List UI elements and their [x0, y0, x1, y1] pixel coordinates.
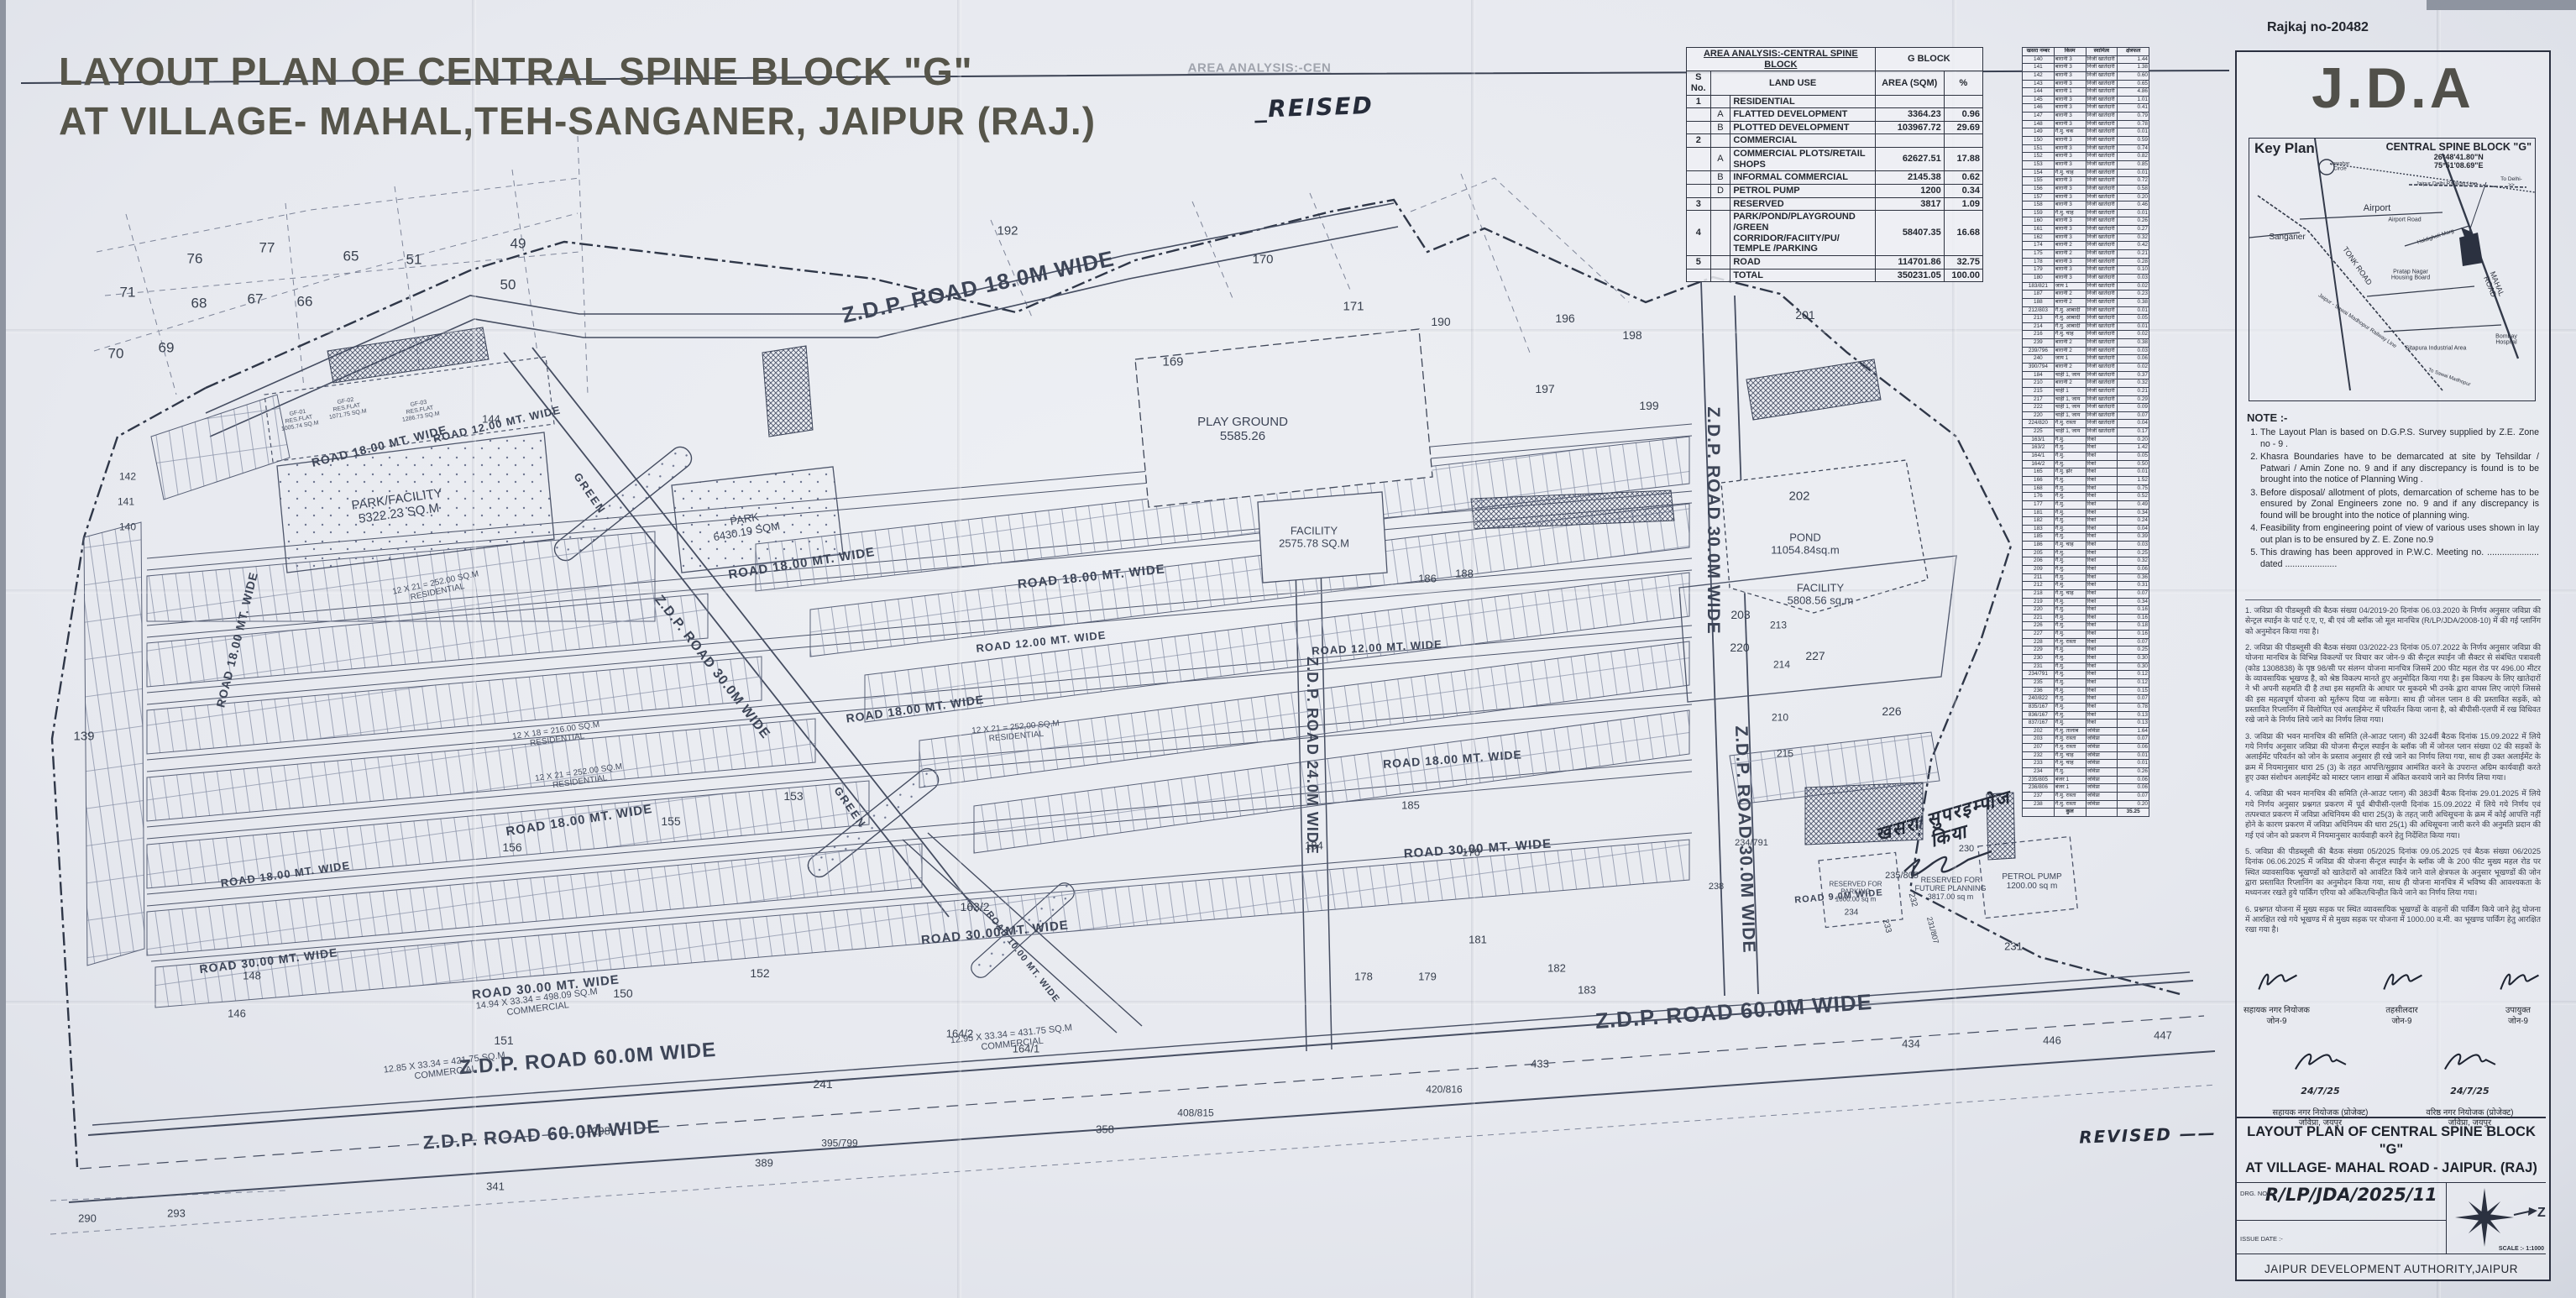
khasra-row: 145 बारानी 3 निजी खातेदारी 1.01: [2023, 96, 2149, 104]
kh-ownership: रिको: [2086, 638, 2118, 646]
khasra-number: 185: [1401, 800, 1420, 813]
kh-number: 228: [2023, 638, 2055, 646]
kh-area: 0.10: [2118, 266, 2149, 275]
kh-number: 225: [2023, 428, 2055, 437]
kh-type: बारानी 3: [2054, 55, 2086, 64]
kh-area: 0.06: [2118, 355, 2149, 364]
kh-type: बारानी 3: [2054, 144, 2086, 153]
cell-use: RESERVED: [1730, 197, 1875, 211]
kh-type: गै.मु. रास्ता: [2054, 792, 2086, 800]
khasra-number: 341: [486, 1181, 505, 1194]
kh-type: बारानी 3: [2054, 258, 2086, 266]
cell-pct: 32.75: [1944, 255, 1982, 269]
khasra-row: 228 गै.मु. रास्ता रिको 0.07: [2023, 638, 2149, 646]
kh-type: गै.मु.: [2054, 678, 2086, 687]
landuse-label: FACILITY 2575.78 SQ.M: [1279, 525, 1349, 549]
kh-area: 4.86: [2118, 88, 2149, 97]
kh-type: गै.मु.: [2054, 711, 2086, 720]
khasra-row: 175 बारानी 2 निजी खातेदारी 0.21: [2023, 250, 2149, 259]
khasra-row: 236/806 बंजर 1 जविप्रा 0.06: [2023, 784, 2149, 793]
kh-col-area: क्षेत्रफल: [2118, 48, 2149, 56]
signature-date: 24/7/25: [2450, 1086, 2489, 1096]
kh-type: गै.मु.: [2054, 493, 2086, 501]
kh-ownership: निजी खातेदारी: [2086, 258, 2118, 266]
signatory-title: सहायक नगर नियोजक जोन-9: [2244, 1006, 2310, 1025]
khasra-number: 153: [783, 790, 803, 803]
kh-area: 1.42: [2118, 444, 2149, 453]
kh-type: चाही 1: [2054, 387, 2086, 395]
kh-number: 166: [2023, 476, 2055, 484]
kh-type: बारानी 3: [2054, 80, 2086, 88]
khasra-number: 76: [187, 250, 203, 266]
khasra-row: 231 गै.मु. रिको 0.30: [2023, 662, 2149, 671]
kh-area: 1.44: [2118, 55, 2149, 64]
khasra-row: 164/1 गै.मु. रिको 0.05: [2023, 453, 2149, 461]
kh-number: 151: [2023, 144, 2055, 153]
khasra-number: 69: [159, 339, 175, 355]
kh-type: चाही 1, जाय: [2054, 428, 2086, 437]
khasra-number: 51: [406, 251, 422, 267]
kh-number: 239: [2023, 339, 2055, 348]
kh-ownership: रिको: [2086, 460, 2118, 468]
kh-ownership: रिको: [2086, 671, 2118, 679]
khasra-row: 227 गै.मु. रिको 0.16: [2023, 631, 2149, 639]
landuse-label: RESERVED FOR PARKING 1000.00 sq m: [1830, 882, 1882, 904]
note-section: NOTE :- The Layout Plan is based on D.G.…: [2247, 411, 2539, 573]
kh-type: बारानी 3: [2054, 104, 2086, 113]
kh-type: गै.मु. आबादी: [2054, 306, 2086, 315]
kh-number: 835/167: [2023, 703, 2055, 711]
kh-number: 188: [2023, 298, 2055, 306]
kh-ownership: जविप्रा: [2086, 751, 2118, 760]
kh-area: 0.12: [2118, 671, 2149, 679]
cell-area: 3364.23: [1875, 108, 1944, 122]
kh-area: 0.01: [2118, 128, 2149, 137]
kh-area: 1.01: [2118, 96, 2149, 104]
cell-sno: 5: [1687, 255, 1711, 269]
scanned-sheet: LAYOUT PLAN OF CENTRAL SPINE BLOCK "G" A…: [0, 0, 2576, 1298]
kh-number: 205: [2023, 549, 2055, 557]
khasra-row: 234/791 गै.मु. रिको 0.12: [2023, 671, 2149, 679]
kh-area: 0.06: [2118, 776, 2149, 784]
kh-type: बारानी 3: [2054, 160, 2086, 169]
signatory-title: तहसीलदार जोन-9: [2385, 1006, 2417, 1025]
kh-number: 176: [2023, 493, 2055, 501]
key-plan-place-label: Pratap Nagar Housing Board: [2391, 270, 2430, 282]
cell-sub: [1710, 211, 1730, 256]
khasra-number: 358: [1096, 1124, 1114, 1137]
khasra-row: 151 बारानी 3 निजी खातेदारी 0.74: [2023, 144, 2149, 153]
kh-number: 220: [2023, 411, 2055, 420]
kh-type: गै.मु.: [2054, 444, 2086, 453]
cell-sub: D: [1710, 185, 1730, 198]
khasra-row: 178 बारानी 3 निजी खातेदारी 0.28: [2023, 258, 2149, 266]
kh-number: 157: [2023, 193, 2055, 202]
kh-area: 0.30: [2118, 655, 2149, 663]
cell-pct: 0.62: [1944, 171, 1982, 185]
kh-area: 0.23: [2118, 290, 2149, 299]
kh-ownership: निजी खातेदारी: [2086, 347, 2118, 355]
kh-ownership: निजी खातेदारी: [2086, 242, 2118, 250]
kh-area: 0.20: [2118, 436, 2149, 444]
khasra-row: 836/167 गै.मु. रिको 0.13: [2023, 711, 2149, 720]
kh-type: बारानी 1: [2054, 88, 2086, 97]
kh-ownership: रिको: [2086, 589, 2118, 598]
col-area: AREA (SQM): [1875, 71, 1944, 95]
khasra-number: 163/2: [960, 901, 989, 914]
khasra-row: 209 गै.मु. रिको 0.06: [2023, 566, 2149, 574]
kh-type: गै.मु. चाह: [2054, 331, 2086, 339]
khasra-row: 217 चाही 1, जाय निजी खातेदारी 0.29: [2023, 395, 2149, 404]
kh-area: 0.07: [2118, 735, 2149, 744]
khasra-row: 143 बारानी 3 निजी खातेदारी 0.65: [2023, 80, 2149, 88]
kh-number: 222: [2023, 404, 2055, 412]
kh-ownership: निजी खातेदारी: [2086, 153, 2118, 161]
kh-type: बारानी 3: [2054, 185, 2086, 193]
kh-area: 0.02: [2118, 331, 2149, 339]
khasra-number: 290: [78, 1213, 97, 1226]
kh-total-label: कुल: [2054, 809, 2086, 817]
kh-area: 0.37: [2118, 371, 2149, 379]
khasra-number: 155: [661, 815, 680, 829]
rajkaj-number: Rajkaj no-20482: [2267, 20, 2369, 35]
khasra-number: 238: [1709, 882, 1724, 892]
kh-type: बारानी 3: [2054, 137, 2086, 145]
area-table-row: 1 RESIDENTIAL: [1687, 95, 1983, 108]
khasra-number: 298: [592, 1126, 610, 1138]
khasra-row: 239/796 बारानी 2 निजी खातेदारी 0.03: [2023, 347, 2149, 355]
kh-area: 0.28: [2118, 258, 2149, 266]
scan-edge-left: [0, 0, 6, 1298]
kh-area: 0.15: [2118, 687, 2149, 695]
kh-number: 226: [2023, 622, 2055, 631]
kh-area: 0.06: [2118, 744, 2149, 752]
kh-type: गै.मु. रास्ता: [2054, 638, 2086, 646]
kh-ownership: निजी खातेदारी: [2086, 96, 2118, 104]
kh-number: 390/794: [2023, 363, 2055, 371]
kh-number: 161: [2023, 226, 2055, 234]
kh-number: 211: [2023, 573, 2055, 582]
kh-area: 0.21: [2118, 250, 2149, 259]
khasra-number: 144: [482, 414, 500, 427]
khasra-row: 141 बारानी 3 निजी खातेदारी 1.38: [2023, 64, 2149, 72]
kh-ownership: निजी खातेदारी: [2086, 282, 2118, 290]
kh-number: 186: [2023, 542, 2055, 550]
khasra-row: 162 बारानी 3 निजी खातेदारी 0.32: [2023, 233, 2149, 242]
khasra-row: 177 गै.मु. रिको 0.49: [2023, 500, 2149, 509]
kh-number: 156: [2023, 185, 2055, 193]
khasra-schedule-table: खसरा नम्बर किस्म स्वामित्व क्षेत्रफल 140…: [2022, 47, 2149, 817]
kh-number: 145: [2023, 96, 2055, 104]
kh-number: 236/806: [2023, 784, 2055, 793]
kh-ownership: निजी खातेदारी: [2086, 363, 2118, 371]
cell-sno: [1687, 148, 1711, 171]
cell-sub: [1710, 197, 1730, 211]
hindi-paragraph: 5. जविप्रा की पीडब्लूसी की बैठक संख्या 0…: [2245, 846, 2541, 898]
signature-row-1: सहायक नगर नियोजक जोन-9 तहसीलदार जोन-9: [2244, 959, 2542, 1027]
khasra-number: 66: [297, 293, 313, 309]
cell-sub: B: [1710, 121, 1730, 134]
khasra-row: 226 गै.मु. रिको 0.18: [2023, 622, 2149, 631]
kh-ownership: रिको: [2086, 711, 2118, 720]
khasra-row: 222 चाही 1, जाय निजी खातेदारी 0.09: [2023, 404, 2149, 412]
khasra-number: 198: [1622, 329, 1641, 343]
kh-area: 0.78: [2118, 703, 2149, 711]
kh-type: बारानी 3: [2054, 64, 2086, 72]
khasra-row: 206 गै.मु. रिको 0.32: [2023, 557, 2149, 566]
kh-area: 0.46: [2118, 202, 2149, 210]
kh-area: 0.72: [2118, 177, 2149, 186]
kh-number: 152: [2023, 153, 2055, 161]
khasra-total-row: कुल 35.25: [2023, 809, 2149, 817]
khasra-number: 447: [2154, 1030, 2172, 1043]
kh-ownership: निजी खातेदारी: [2086, 339, 2118, 348]
kh-ownership: रिको: [2086, 500, 2118, 509]
kh-type: बंजर 1: [2054, 784, 2086, 793]
kh-area: 1.64: [2118, 727, 2149, 735]
kh-ownership: निजी खातेदारी: [2086, 113, 2118, 121]
scale-label: SCALE :- 1:1000: [2499, 1246, 2544, 1252]
drg-no-value: R/LP/JDA/2025/11: [2265, 1185, 2437, 1205]
kh-area: 0.05: [2118, 453, 2149, 461]
kh-number: 218: [2023, 589, 2055, 598]
khasra-number: 148: [243, 971, 261, 983]
kh-area: 1.38: [2118, 64, 2149, 72]
cell-use: INFORMAL COMMERCIAL: [1730, 171, 1875, 185]
cell-sub: [1710, 255, 1730, 269]
kh-ownership: निजी खातेदारी: [2086, 331, 2118, 339]
drawing-title-block: LAYOUT PLAN OF CENTRAL SPINE BLOCK "G" A…: [2237, 1117, 2546, 1284]
kh-type: गै.मु. चाह: [2054, 751, 2086, 760]
khasra-number: 202: [1788, 490, 1809, 505]
kh-area: 0.01: [2118, 322, 2149, 331]
road-label: Z.D.P. ROAD 30.0M WIDE: [1703, 406, 1723, 634]
kh-ownership: रिको: [2086, 509, 2118, 517]
kh-area: 0.32: [2118, 379, 2149, 388]
kh-ownership: रिको: [2086, 582, 2118, 590]
khasra-number: 196: [1555, 312, 1574, 326]
area-table-row: D PETROL PUMP 1200 0.34: [1687, 185, 1983, 198]
kh-ownership: निजी खातेदारी: [2086, 144, 2118, 153]
kh-type: बारानी 3: [2054, 153, 2086, 161]
road-label: Z.D.P. ROAD 24.0M WIDE: [1304, 657, 1321, 855]
cell-sno: [1687, 121, 1711, 134]
kh-area: 0.21: [2118, 387, 2149, 395]
key-plan-coord-n: 26°48'41.80"N: [2386, 153, 2531, 161]
kh-area: 0.79: [2118, 113, 2149, 121]
kh-type: गै.मु.: [2054, 695, 2086, 704]
signature: उपायुक्त जोन-9: [2494, 959, 2542, 1027]
cell-area: 58407.35: [1875, 211, 1944, 256]
hindi-paragraph: 3. जविप्रा की भवन मानचित्र की समिति (ले-…: [2245, 731, 2541, 783]
khasra-row: 215 चाही 1 निजी खातेदारी 0.21: [2023, 387, 2149, 395]
kh-type: गै.मु. चाह: [2054, 760, 2086, 768]
area-analysis-table: AREA ANALYSIS:-CENTRAL SPINE BLOCK G BLO…: [1686, 47, 1983, 282]
key-plan: Key Plan CENTRAL SPINE BLOCK "G" 26°48'4…: [2249, 138, 2536, 401]
north-arrow-cell: Z SCALE :- 1:1000: [2447, 1183, 2546, 1254]
kh-area: 0.39: [2118, 533, 2149, 542]
cell-use: PARK/POND/PLAYGROUND /GREEN CORRIDOR/FAC…: [1730, 211, 1875, 256]
khasra-number: 446: [2043, 1035, 2061, 1048]
kh-area: 0.26: [2118, 217, 2149, 226]
khasra-number: 210: [1772, 712, 1788, 723]
cell-use: TOTAL: [1730, 269, 1875, 282]
cell-sub: B: [1710, 171, 1730, 185]
kh-area: 0.07: [2118, 411, 2149, 420]
khasra-number: 142: [119, 471, 136, 482]
kh-ownership: रिको: [2086, 573, 2118, 582]
kh-area: 0.02: [2118, 363, 2149, 371]
kh-ownership: रिको: [2086, 614, 2118, 622]
kh-area: 0.02: [2118, 282, 2149, 290]
kh-number: 230: [2023, 655, 2055, 663]
khasra-row: 205 गै.मु. रिको 0.25: [2023, 549, 2149, 557]
kh-ownership: निजी खातेदारी: [2086, 169, 2118, 177]
kh-number: 163/2: [2023, 444, 2055, 453]
khasra-number: 199: [1639, 400, 1658, 413]
khasra-number: 214: [1773, 659, 1790, 670]
kh-ownership: निजी खातेदारी: [2086, 137, 2118, 145]
kh-number: 160: [2023, 217, 2055, 226]
khasra-row: 237 गै.मु. रास्ता जविप्रा 0.07: [2023, 792, 2149, 800]
khasra-row: 225 चाही 1, जाय निजी खातेदारी 0.17: [2023, 428, 2149, 437]
kh-type: बारानी 3: [2054, 71, 2086, 80]
khasra-row: 160 बारानी 3 निजी खातेदारी 0.26: [2023, 217, 2149, 226]
khasra-row: 187 बारानी 2 निजी खातेदारी 0.23: [2023, 290, 2149, 299]
kh-number: 235/805: [2023, 776, 2055, 784]
cell-use: COMMERCIAL PLOTS/RETAIL SHOPS: [1730, 148, 1875, 171]
kh-number: 143: [2023, 80, 2055, 88]
kh-area: 0.25: [2118, 549, 2149, 557]
note-list: The Layout Plan is based on D.G.P.S. Sur…: [2260, 427, 2539, 571]
khasra-row: 188 बारानी 2 निजी खातेदारी 0.38: [2023, 298, 2149, 306]
kh-type: बारानी 2: [2054, 250, 2086, 259]
khasra-number: 188: [1455, 568, 1474, 581]
kh-number: 207: [2023, 744, 2055, 752]
kh-type: बारानी 2: [2054, 379, 2086, 388]
kh-type: गै.मु.: [2054, 436, 2086, 444]
kh-type: गै.मु.: [2054, 549, 2086, 557]
landuse-label: FACILITY 5808.56 sq.m: [1788, 582, 1854, 606]
cell-sub: [1710, 95, 1730, 108]
kh-ownership: रिको: [2086, 493, 2118, 501]
kh-number: 177: [2023, 500, 2055, 509]
kh-ownership: रिको: [2086, 542, 2118, 550]
kh-ownership: निजी खातेदारी: [2086, 80, 2118, 88]
khasra-row: 164/2 गै.मु. रिको 0.50: [2023, 460, 2149, 468]
north-letter: Z: [2537, 1206, 2546, 1220]
khasra-number: 213: [1770, 620, 1787, 631]
kh-area: 0.75: [2118, 484, 2149, 493]
kh-number: 235: [2023, 678, 2055, 687]
area-table-header-right: G BLOCK: [1875, 48, 1982, 71]
kh-area: 0.74: [2118, 144, 2149, 153]
cell-pct: 17.88: [1944, 148, 1982, 171]
signatory-title: उपायुक्त जोन-9: [2505, 1006, 2531, 1025]
khasra-number: 152: [750, 967, 769, 981]
khasra-number: 146: [228, 1008, 246, 1021]
kh-type: गै.मु.: [2054, 614, 2086, 622]
kh-area: 0.52: [2118, 493, 2149, 501]
signature-row-2: 24/7/25 सहायक नगर नियोजक (प्रोजेक्ट) जवि…: [2244, 1040, 2542, 1128]
khasra-number: 151: [494, 1034, 513, 1048]
kh-type: बारानी 3: [2054, 177, 2086, 186]
kh-type: बारानी 3: [2054, 96, 2086, 104]
kh-type: गै.मु.: [2054, 662, 2086, 671]
area-table-row: B INFORMAL COMMERCIAL 2145.38 0.62: [1687, 171, 1983, 185]
kh-ownership: निजी खातेदारी: [2086, 226, 2118, 234]
key-plan-place-label: Jaipur Delhi Railway Line: [2416, 182, 2478, 188]
kh-type: गै.मु.: [2054, 453, 2086, 461]
kh-area: 0.17: [2118, 428, 2149, 437]
khasra-row: 207 गै.मु. रास्ता जविप्रा 0.06: [2023, 744, 2149, 752]
note-item: This drawing has been approved in P.W.C.…: [2260, 547, 2539, 570]
signature-squiggle: [2252, 969, 2301, 996]
kh-ownership: निजी खातेदारी: [2086, 411, 2118, 420]
kh-col-ownership: स्वामित्व: [2086, 48, 2118, 56]
khasra-row: 216 गै.मु. चाह निजी खातेदारी 0.02: [2023, 331, 2149, 339]
kh-number: 232: [2023, 751, 2055, 760]
kh-number: 837/167: [2023, 720, 2055, 728]
khasra-number: 235/805: [1885, 871, 1919, 881]
kh-area: 0.01: [2118, 306, 2149, 315]
authority-name: JAIPUR DEVELOPMENT AUTHORITY,JAIPUR: [2237, 1254, 2546, 1284]
kh-ownership: निजी खातेदारी: [2086, 104, 2118, 113]
kh-type: बारानी 2: [2054, 347, 2086, 355]
kh-total-value: 35.25: [2118, 809, 2149, 817]
cell-sub: [1710, 269, 1730, 282]
key-plan-place-label: To Delhi->>: [2500, 177, 2523, 189]
khasra-number: 433: [1531, 1059, 1549, 1071]
kh-type: बारानी 3: [2054, 120, 2086, 128]
kh-type: बारानी 2: [2054, 242, 2086, 250]
signature: 24/7/25 सहायक नगर नियोजक (प्रोजेक्ट) जवि…: [2273, 1040, 2369, 1128]
drg-no-cell: DRG. NO. :- R/LP/JDA/2025/11 ISSUE DATE …: [2237, 1183, 2447, 1254]
kh-number: 182: [2023, 517, 2055, 526]
signature-squiggle: [2439, 1050, 2500, 1076]
kh-ownership: जविप्रा: [2086, 727, 2118, 735]
kh-area: 0.65: [2118, 80, 2149, 88]
signature-block: सहायक नगर नियोजक जोन-9 तहसीलदार जोन-9: [2244, 959, 2542, 1142]
khasra-row: 174 बारानी 2 निजी खातेदारी 0.42: [2023, 242, 2149, 250]
kh-ownership: निजी खातेदारी: [2086, 193, 2118, 202]
khasra-number: 70: [108, 345, 124, 361]
signature-squiggle: [2377, 969, 2426, 996]
khasra-number: 141: [118, 496, 134, 507]
kh-ownership: निजी खातेदारी: [2086, 160, 2118, 169]
khasra-row: 144 बारानी 1 निजी खातेदारी 4.86: [2023, 88, 2149, 97]
kh-ownership: रिको: [2086, 655, 2118, 663]
khasra-number: 389: [755, 1158, 773, 1170]
cell-area: 1200: [1875, 185, 1944, 198]
kh-area: 0.20: [2118, 800, 2149, 809]
khasra-row: 235 गै.मु. रिको 0.12: [2023, 678, 2149, 687]
landuse-label: PETROL PUMP 1200.00 sq m: [2002, 872, 2061, 891]
cell-use: PLOTTED DEVELOPMENT: [1730, 121, 1875, 134]
khasra-number: 170: [1252, 254, 1273, 268]
kh-area: 0.20: [2118, 193, 2149, 202]
kh-type: गै.मु. चाह: [2054, 169, 2086, 177]
kh-type: गै.मु. रास्ता: [2054, 735, 2086, 744]
kh-number: 217: [2023, 395, 2055, 404]
khasra-row: 235/805 बंजर 1 जविप्रा 0.06: [2023, 776, 2149, 784]
kh-ownership: निजी खातेदारी: [2086, 355, 2118, 364]
kh-area: 1.52: [2118, 476, 2149, 484]
cell-pct: 16.68: [1944, 211, 1982, 256]
kh-ownership: निजी खातेदारी: [2086, 379, 2118, 388]
kh-number: 240: [2023, 355, 2055, 364]
handwritten-annotation: _REISED: [1254, 92, 1374, 123]
